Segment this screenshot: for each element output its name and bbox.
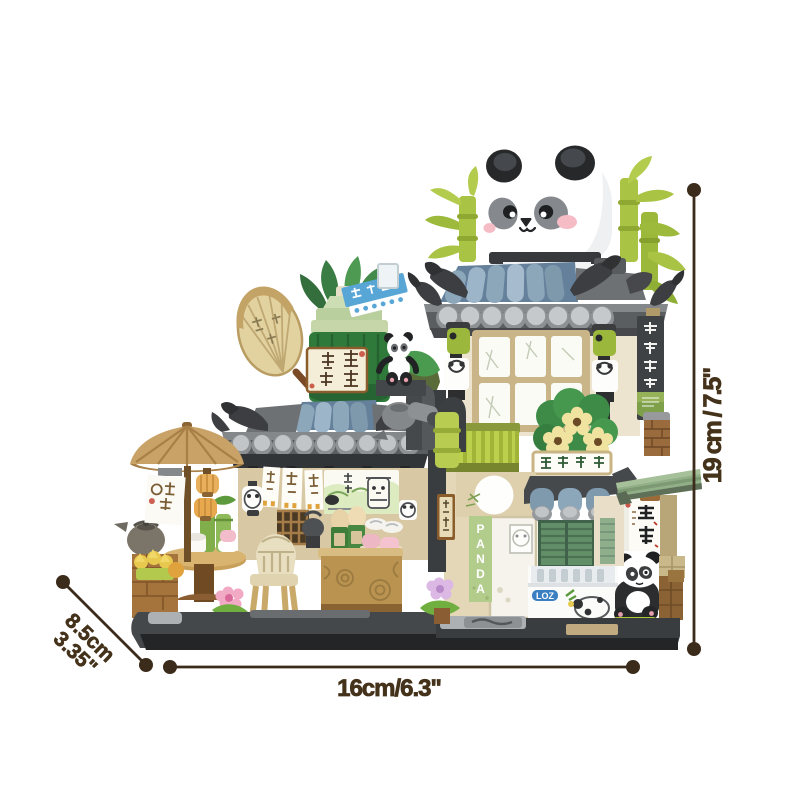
svg-text:P: P: [476, 522, 484, 536]
svg-text:D: D: [476, 567, 485, 581]
svg-text:N: N: [476, 552, 485, 566]
svg-text:19 cm / 7.5": 19 cm / 7.5": [699, 368, 727, 483]
svg-text:A: A: [476, 537, 485, 551]
svg-text:A: A: [476, 582, 485, 596]
svg-text:16cm/6.3": 16cm/6.3": [337, 675, 441, 702]
svg-text:LOZ: LOZ: [536, 591, 554, 601]
